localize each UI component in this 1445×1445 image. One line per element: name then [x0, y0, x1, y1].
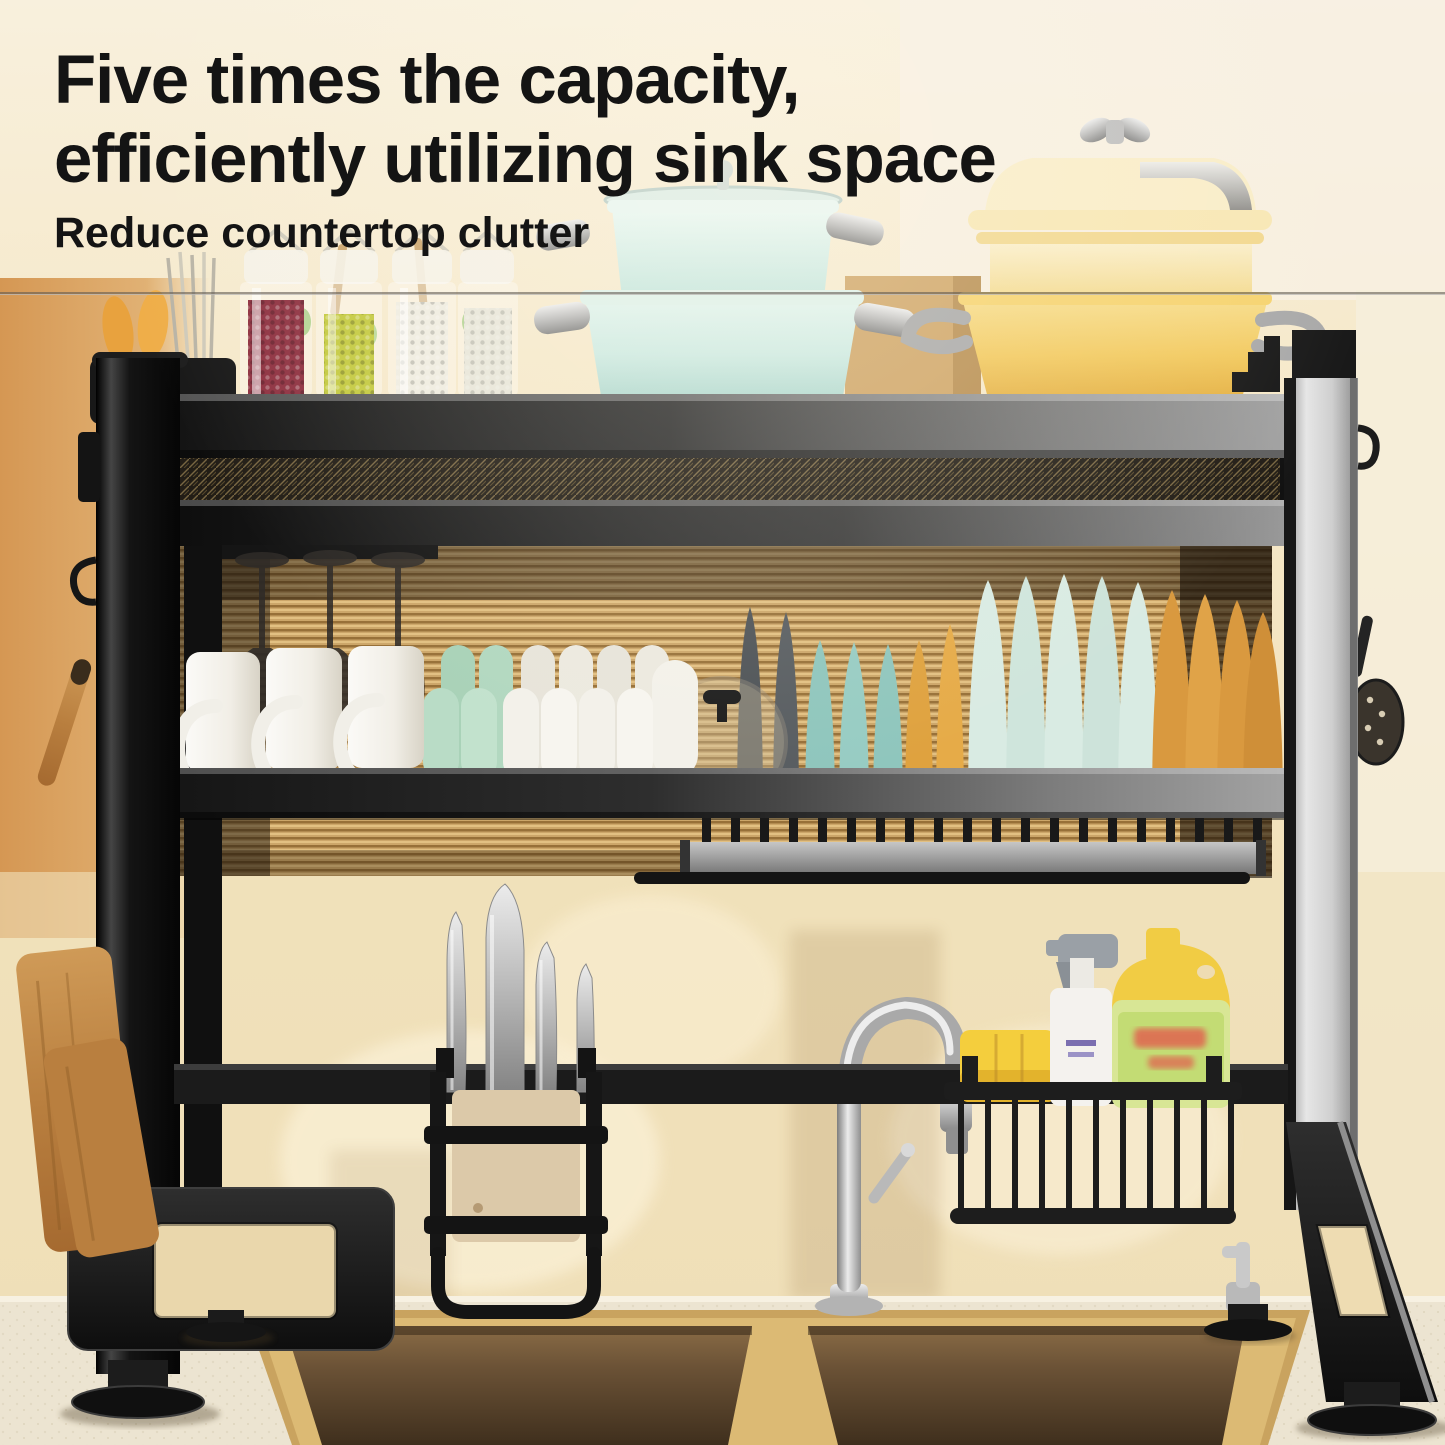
headline-block: Five times the capacity, efficiently uti… — [54, 40, 996, 256]
headline-line-2: efficiently utilizing sink space — [54, 119, 996, 198]
subtitle: Reduce countertop clutter — [54, 210, 996, 256]
headline-line-1: Five times the capacity, — [54, 40, 996, 119]
product-marketing-image: Five times the capacity, efficiently uti… — [0, 0, 1445, 1445]
divider-line — [0, 292, 1445, 295]
